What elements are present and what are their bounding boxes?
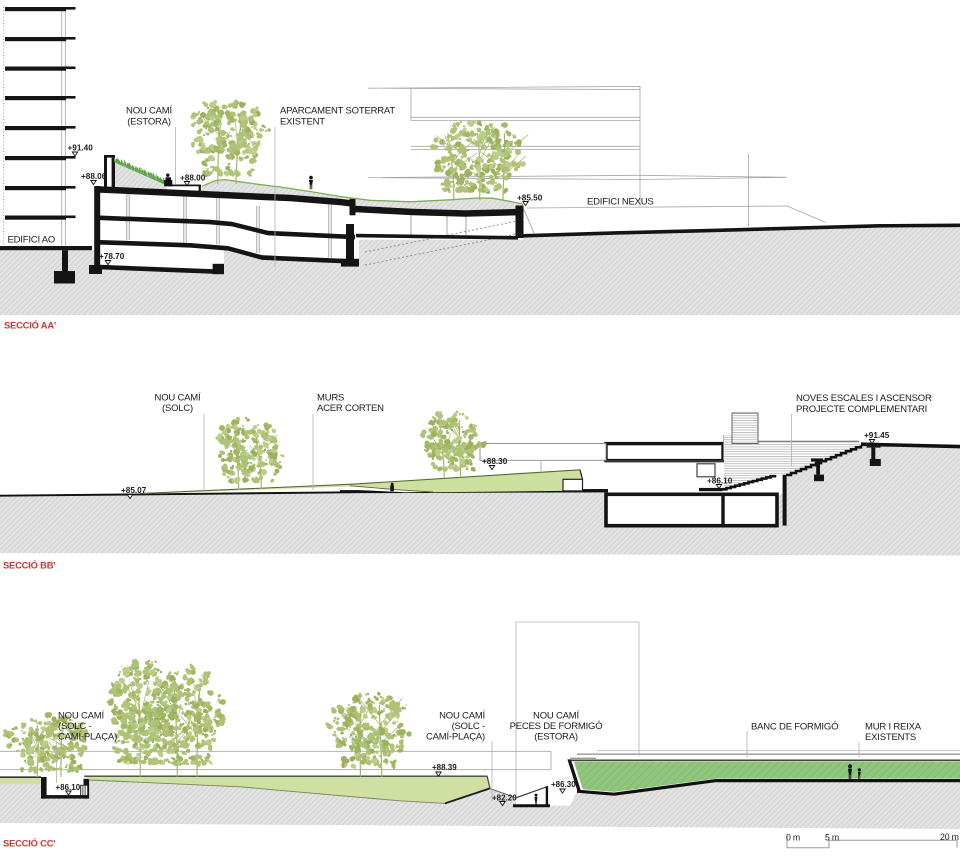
svg-text:+88.30: +88.30: [482, 457, 508, 466]
svg-text:NOU CAMÍ: NOU CAMÍ: [439, 711, 485, 722]
svg-text:(ESTORA): (ESTORA): [534, 732, 578, 743]
svg-text:CAMÍ-PLAÇA): CAMÍ-PLAÇA): [426, 732, 485, 743]
svg-text:EXISTENTS: EXISTENTS: [865, 732, 916, 743]
svg-text:+91.40: +91.40: [68, 144, 94, 153]
svg-text:+86.30: +86.30: [551, 780, 576, 789]
svg-text:+78.70: +78.70: [99, 252, 125, 261]
svg-text:EDIFICI NEXUS: EDIFICI NEXUS: [587, 197, 654, 208]
svg-text:MUR I REIXA: MUR I REIXA: [865, 722, 922, 733]
svg-text:SECCIÓ CC': SECCIÓ CC': [3, 838, 55, 849]
svg-text:MURS: MURS: [317, 393, 344, 404]
svg-text:+88.39: +88.39: [432, 763, 457, 772]
svg-text:CAMÍ-PLAÇA): CAMÍ-PLAÇA): [58, 732, 117, 743]
svg-text:+85.07: +85.07: [121, 486, 147, 495]
svg-text:SECCIÓ BB': SECCIÓ BB': [3, 560, 55, 571]
svg-text:ACER CORTEN: ACER CORTEN: [317, 403, 384, 414]
svg-text:EDIFICI AO: EDIFICI AO: [8, 235, 56, 246]
svg-text:(SOLC): (SOLC): [162, 403, 193, 414]
svg-text:NOU CAMÍ: NOU CAMÍ: [155, 393, 201, 404]
svg-text:PROJECTE COMPLEMENTARI: PROJECTE COMPLEMENTARI: [796, 404, 927, 415]
svg-text:NOVES ESCALES I ASCENSOR: NOVES ESCALES I ASCENSOR: [796, 393, 932, 404]
svg-text:NOU CAMÍ: NOU CAMÍ: [58, 711, 104, 722]
svg-text:APARCAMENT SOTERRAT: APARCAMENT SOTERRAT: [280, 106, 395, 117]
svg-text:NOU CAMÍ: NOU CAMÍ: [126, 106, 172, 117]
svg-text:20 m: 20 m: [940, 832, 959, 842]
svg-text:+91.45: +91.45: [864, 431, 890, 440]
svg-text:(SOLC -: (SOLC -: [58, 721, 91, 732]
svg-text:+88.06: +88.06: [81, 172, 107, 181]
svg-text:PECES DE FORMIGÓ: PECES DE FORMIGÓ: [510, 721, 603, 732]
svg-text:EXISTENT: EXISTENT: [280, 117, 325, 128]
svg-text:BANC DE FORMIGÓ: BANC DE FORMIGÓ: [751, 722, 838, 733]
svg-text:5 m: 5 m: [825, 833, 839, 843]
svg-text:+85.50: +85.50: [517, 194, 543, 203]
svg-text:(ESTORA): (ESTORA): [127, 117, 171, 128]
svg-text:SECCIÓ AA': SECCIÓ AA': [4, 320, 56, 331]
svg-text:(SOLC -: (SOLC -: [452, 721, 485, 732]
svg-text:0 m: 0 m: [786, 833, 800, 843]
svg-text:NOU CAMÍ: NOU CAMÍ: [533, 711, 579, 722]
